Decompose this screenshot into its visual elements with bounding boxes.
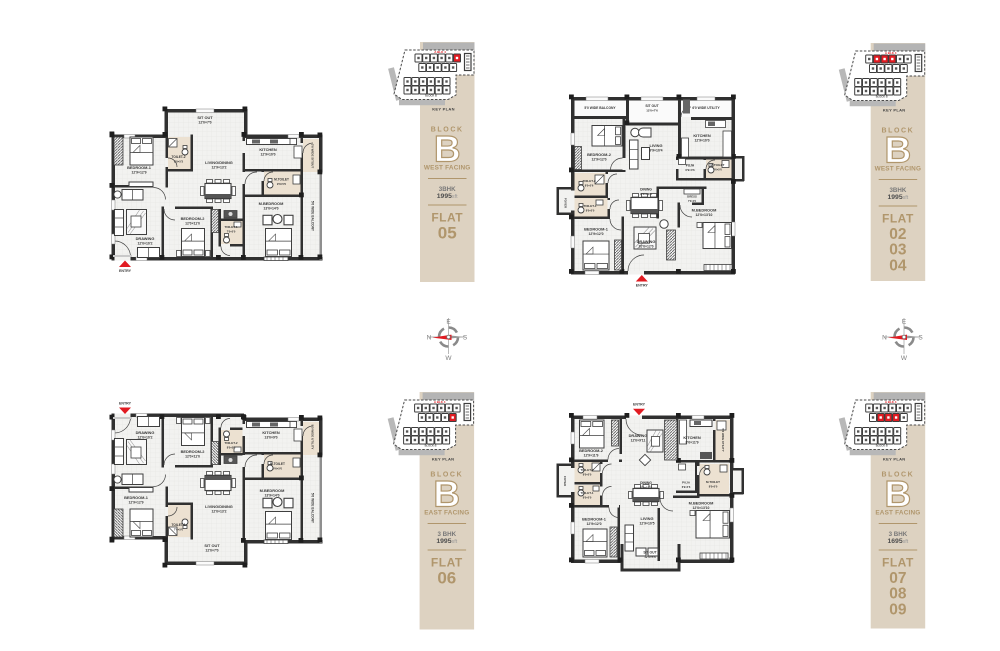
svg-text:SIT OUT: SIT OUT	[643, 551, 657, 555]
svg-text:12'0×10'2: 12'0×10'2	[137, 436, 152, 440]
svg-text:PUJA: PUJA	[682, 481, 691, 485]
svg-text:ENTRY: ENTRY	[633, 403, 646, 407]
svg-text:1995sft: 1995sft	[436, 538, 457, 545]
svg-text:12'0×13'10: 12'0×13'10	[696, 213, 713, 217]
svg-text:12'0×7'6: 12'0×7'6	[646, 109, 658, 113]
svg-text:03: 03	[889, 242, 907, 259]
svg-text:M.BEDROOM: M.BEDROOM	[692, 208, 717, 213]
svg-text:ENTRY: ENTRY	[119, 269, 132, 273]
svg-text:BEDROOM-1: BEDROOM-1	[127, 165, 152, 170]
svg-text:PUJA: PUJA	[686, 164, 695, 168]
svg-text:5'0 WIDE BALCONY: 5'0 WIDE BALCONY	[311, 493, 315, 524]
svg-text:B: B	[885, 474, 912, 515]
svg-text:DRAWING: DRAWING	[136, 236, 155, 241]
svg-text:LIVING/DINING: LIVING/DINING	[205, 160, 233, 165]
svg-text:TOILET-1: TOILET-1	[583, 204, 596, 208]
svg-text:WEST FACING: WEST FACING	[424, 165, 471, 172]
svg-text:3 BHK: 3 BHK	[438, 531, 457, 538]
svg-text:M.BEDROOM: M.BEDROOM	[259, 201, 284, 206]
svg-text:10'0×12'0: 10'0×12'0	[638, 245, 653, 249]
svg-text:8'0×5'0: 8'0×5'0	[583, 496, 592, 500]
svg-text:M.BEDROOM: M.BEDROOM	[689, 501, 714, 506]
svg-text:3BHK: 3BHK	[439, 186, 456, 193]
svg-text:S: S	[463, 334, 468, 341]
svg-text:7'0×5'0: 7'0×5'0	[227, 230, 236, 234]
svg-text:FOYER: FOYER	[564, 198, 568, 209]
svg-text:7'0×5'0: 7'0×5'0	[174, 528, 184, 532]
svg-text:TOILET-2: TOILET-2	[224, 441, 237, 445]
svg-text:M.TOILET: M.TOILET	[274, 178, 289, 182]
svg-text:12'9×12'0: 12'9×12'0	[588, 232, 603, 236]
svg-text:LIVING: LIVING	[650, 143, 663, 148]
svg-text:TOILET-2: TOILET-2	[172, 155, 186, 159]
svg-text:EAST FACING: EAST FACING	[875, 510, 920, 517]
svg-text:12'0×7'0: 12'0×7'0	[205, 549, 218, 553]
svg-text:BEDROOM-2: BEDROOM-2	[181, 216, 206, 221]
svg-text:LIVING/DINING: LIVING/DINING	[205, 504, 233, 509]
svg-text:BLOCK B: BLOCK B	[425, 94, 437, 98]
svg-text:TOILET-1: TOILET-1	[224, 225, 237, 229]
svg-text:8'0×5'0: 8'0×5'0	[583, 473, 592, 477]
svg-text:1995sft: 1995sft	[887, 194, 908, 201]
svg-text:12'0×10'2: 12'0×10'2	[137, 242, 152, 246]
svg-text:N: N	[882, 334, 887, 341]
svg-text:TOILET-2: TOILET-2	[580, 468, 593, 472]
svg-text:02: 02	[889, 226, 906, 243]
svg-text:DRAWING: DRAWING	[136, 430, 155, 435]
svg-text:13'9×14'0: 13'9×14'0	[264, 494, 279, 498]
svg-text:BLOCK B: BLOCK B	[876, 95, 888, 99]
svg-text:TOILET-1: TOILET-1	[172, 523, 186, 527]
svg-text:M.TOILET: M.TOILET	[706, 480, 720, 484]
svg-text:KITCHEN: KITCHEN	[683, 435, 700, 440]
svg-text:12'0×13'2: 12'0×13'2	[211, 510, 226, 514]
svg-text:BEDROOM-2: BEDROOM-2	[579, 448, 604, 453]
svg-text:BEDROOM-1: BEDROOM-1	[582, 517, 607, 522]
svg-text:12'9×11'9: 12'9×11'9	[584, 454, 599, 458]
svg-text:TOILET-1: TOILET-1	[580, 491, 593, 495]
svg-text:3 BHK: 3 BHK	[889, 531, 908, 538]
svg-text:ENTRY: ENTRY	[119, 401, 132, 405]
svg-text:9'6×5'0: 9'6×5'0	[713, 168, 722, 172]
svg-text:7'0×4'0: 7'0×4'0	[688, 200, 697, 203]
svg-text:8'0×5'3: 8'0×5'3	[174, 160, 184, 164]
svg-text:8'0×5'3: 8'0×5'3	[227, 446, 236, 450]
svg-text:08: 08	[889, 586, 907, 603]
svg-text:05: 05	[438, 224, 457, 243]
svg-text:SIT OUT: SIT OUT	[645, 104, 659, 108]
svg-text:12'9×10'0: 12'9×10'0	[260, 153, 275, 157]
svg-text:12'9×12'9: 12'9×12'9	[131, 171, 146, 175]
svg-text:3'6 WIDE SITOUT: 3'6 WIDE SITOUT	[311, 144, 315, 169]
svg-text:DINING: DINING	[640, 481, 652, 485]
svg-text:13'0×14'0: 13'0×14'0	[263, 207, 278, 211]
svg-text:BEDROOM-2: BEDROOM-2	[181, 449, 206, 454]
svg-text:12'0×5'6: 12'0×5'6	[644, 555, 656, 559]
svg-text:1995sft: 1995sft	[437, 193, 458, 200]
svg-text:BLOCK B: BLOCK B	[876, 444, 888, 448]
svg-text:B: B	[433, 474, 460, 515]
svg-text:B: B	[434, 129, 461, 170]
svg-text:9'9×10'4: 9'9×10'4	[649, 149, 662, 153]
svg-text:WEST FACING: WEST FACING	[875, 166, 922, 173]
svg-text:8'0×5'0: 8'0×5'0	[709, 485, 718, 489]
svg-text:KITCHEN: KITCHEN	[259, 147, 276, 152]
svg-text:8'0×13'0: 8'0×13'0	[640, 192, 652, 196]
svg-text:M.TOILET: M.TOILET	[711, 163, 725, 167]
svg-text:12'9×12'0: 12'9×12'0	[591, 158, 606, 162]
svg-text:TOILET-2: TOILET-2	[582, 179, 595, 183]
svg-text:KEY PLAN: KEY PLAN	[432, 457, 455, 462]
svg-text:SIT OUT: SIT OUT	[204, 543, 220, 548]
svg-text:13'0×9'0: 13'0×9'0	[264, 436, 277, 440]
svg-text:BEDROOM-1: BEDROOM-1	[584, 227, 609, 232]
svg-text:FLAT: FLAT	[431, 556, 463, 570]
svg-text:BEDROOM-1: BEDROOM-1	[124, 495, 149, 500]
svg-text:8'0×5'6: 8'0×5'6	[585, 184, 594, 188]
svg-text:12'9×13'2: 12'9×13'2	[211, 166, 226, 170]
svg-text:A BLK 4: A BLK 4	[434, 50, 446, 54]
svg-text:FOYER: FOYER	[563, 476, 567, 487]
svg-text:5'0 WIDE UTILITY: 5'0 WIDE UTILITY	[721, 428, 725, 451]
svg-text:DINING: DINING	[640, 188, 652, 192]
svg-text:FLAT: FLAT	[882, 212, 914, 226]
svg-text:KEY PLAN: KEY PLAN	[883, 108, 906, 113]
svg-text:W: W	[901, 355, 908, 362]
svg-text:8'0×13'0: 8'0×13'0	[640, 486, 652, 490]
svg-text:3BHK: 3BHK	[889, 187, 906, 194]
svg-text:12'0×7'0: 12'0×7'0	[198, 121, 211, 125]
svg-text:9'6×5'0: 9'6×5'0	[273, 467, 283, 471]
svg-text:12'9×10'0: 12'9×10'0	[694, 139, 709, 143]
svg-text:04: 04	[889, 257, 907, 274]
svg-text:1695sft: 1695sft	[887, 538, 908, 545]
svg-text:FLAT: FLAT	[431, 211, 463, 225]
svg-text:12'9×12'9: 12'9×12'9	[128, 501, 143, 505]
svg-text:DRESS: DRESS	[687, 195, 697, 199]
svg-text:BEDROOM-2: BEDROOM-2	[587, 152, 612, 157]
svg-text:B: B	[885, 130, 912, 171]
svg-text:5'0 WIDE BALCONY: 5'0 WIDE BALCONY	[311, 201, 315, 232]
svg-text:6'0 WIDE UTILITY: 6'0 WIDE UTILITY	[692, 106, 720, 110]
svg-text:SIT OUT: SIT OUT	[197, 115, 213, 120]
svg-text:12'0×13'10: 12'0×13'10	[693, 506, 710, 510]
svg-text:E: E	[902, 319, 907, 326]
svg-text:KEY PLAN: KEY PLAN	[432, 107, 455, 112]
svg-text:12'0×11'0: 12'0×11'0	[185, 222, 200, 226]
svg-text:DRAWING: DRAWING	[637, 239, 656, 244]
svg-text:5'0 WIDE BALCONY: 5'0 WIDE BALCONY	[584, 106, 616, 110]
svg-text:9'6×5'0: 9'6×5'0	[277, 182, 287, 186]
svg-text:FLAT: FLAT	[882, 556, 914, 570]
svg-text:BLOCK B: BLOCK B	[425, 444, 437, 448]
svg-text:A BLK 4: A BLK 4	[885, 51, 897, 55]
svg-text:LIVING: LIVING	[641, 516, 654, 521]
svg-text:12'0×9'11: 12'0×9'11	[631, 439, 646, 443]
svg-text:KITCHEN: KITCHEN	[262, 430, 279, 435]
svg-text:A BLK 4: A BLK 4	[885, 400, 897, 404]
svg-text:KITCHEN: KITCHEN	[693, 133, 710, 138]
svg-text:6'9×4'6: 6'9×4'6	[685, 168, 695, 172]
svg-text:06: 06	[437, 569, 456, 588]
svg-text:12'9×10'5: 12'9×10'5	[639, 522, 654, 526]
svg-text:KEY PLAN: KEY PLAN	[883, 457, 906, 462]
svg-text:8'0×5'0: 8'0×5'0	[586, 209, 595, 213]
svg-text:S: S	[918, 334, 923, 341]
svg-text:07: 07	[889, 570, 906, 587]
svg-text:A BLK 4: A BLK 4	[434, 400, 446, 404]
svg-text:M.TOILET: M.TOILET	[270, 462, 285, 466]
svg-text:ENTRY: ENTRY	[636, 284, 649, 288]
svg-text:8'0×11'9: 8'0×11'9	[686, 441, 699, 445]
svg-text:DRAWING: DRAWING	[629, 433, 648, 438]
svg-text:6'9×4'6: 6'9×4'6	[682, 485, 691, 489]
svg-text:12'9×12'0: 12'9×12'0	[586, 522, 601, 526]
svg-text:12'0×11'0: 12'0×11'0	[185, 455, 200, 459]
svg-text:M.BEDROOM: M.BEDROOM	[260, 488, 285, 493]
svg-text:W: W	[445, 355, 452, 362]
svg-text:09: 09	[889, 601, 907, 618]
svg-text:E: E	[446, 319, 451, 326]
svg-text:EAST FACING: EAST FACING	[424, 510, 469, 517]
svg-text:5'0 WIDE UTILITY: 5'0 WIDE UTILITY	[311, 425, 315, 450]
svg-text:N: N	[427, 334, 432, 341]
